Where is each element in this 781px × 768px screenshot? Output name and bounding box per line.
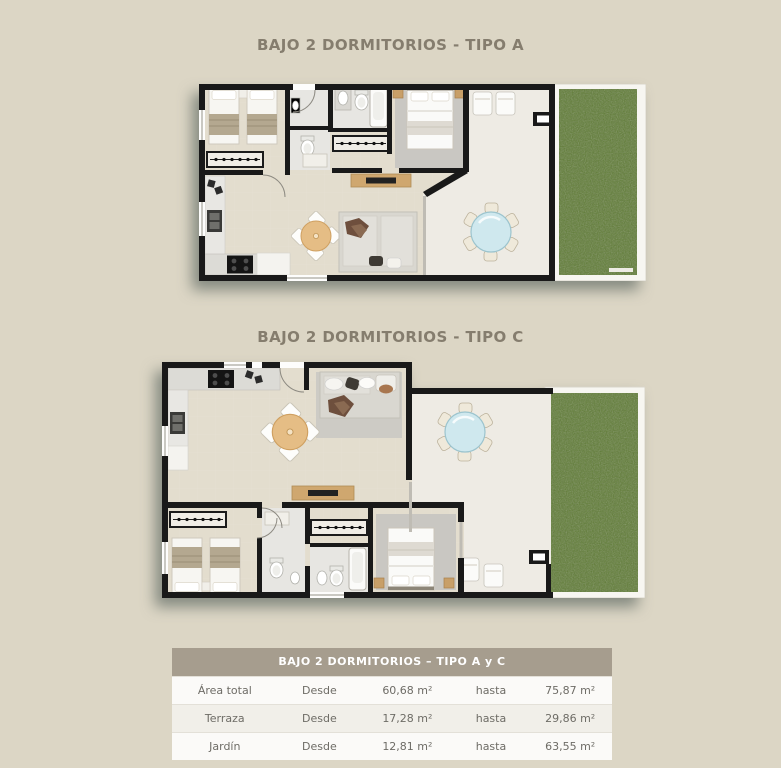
row-label: Jardín <box>172 740 278 753</box>
floorplan-c-svg <box>162 362 645 598</box>
row-from-value: 17,28 m² <box>361 712 453 725</box>
floorplan-a-image <box>199 84 646 281</box>
plan-c-title: BAJO 2 DORMITORIOS - TIPO C <box>0 328 781 346</box>
row-label: Terraza <box>172 712 278 725</box>
row-to-label: hasta <box>454 740 529 753</box>
dimensions-table-header: BAJO 2 DORMITORIOS – TIPO A y C <box>172 648 612 676</box>
plan-a-title: BAJO 2 DORMITORIOS - TIPO A <box>0 36 781 54</box>
row-to-label: hasta <box>454 712 529 725</box>
row-from-label: Desde <box>278 712 362 725</box>
row-to-value: 75,87 m² <box>528 684 612 697</box>
row-to-value: 29,86 m² <box>528 712 612 725</box>
page: { "page": { "background_color": "#dcd6c5… <box>0 0 781 768</box>
floorplan-c-image <box>162 362 645 598</box>
table-row-terraza: Terraza Desde 17,28 m² hasta 29,86 m² <box>172 704 612 732</box>
row-to-label: hasta <box>454 684 529 697</box>
garden-a <box>549 84 646 281</box>
row-to-value: 63,55 m² <box>528 740 612 753</box>
row-from-label: Desde <box>278 684 362 697</box>
table-row-area-total: Área total Desde 60,68 m² hasta 75,87 m² <box>172 676 612 704</box>
row-from-label: Desde <box>278 740 362 753</box>
table-row-jardin: Jardín Desde 12,81 m² hasta 63,55 m² <box>172 732 612 760</box>
row-label: Área total <box>172 684 278 697</box>
row-from-value: 12,81 m² <box>361 740 453 753</box>
floorplan-a-svg <box>199 84 646 281</box>
dimensions-table: BAJO 2 DORMITORIOS – TIPO A y C Área tot… <box>172 648 612 760</box>
row-from-value: 60,68 m² <box>361 684 453 697</box>
garden-c <box>545 387 645 598</box>
